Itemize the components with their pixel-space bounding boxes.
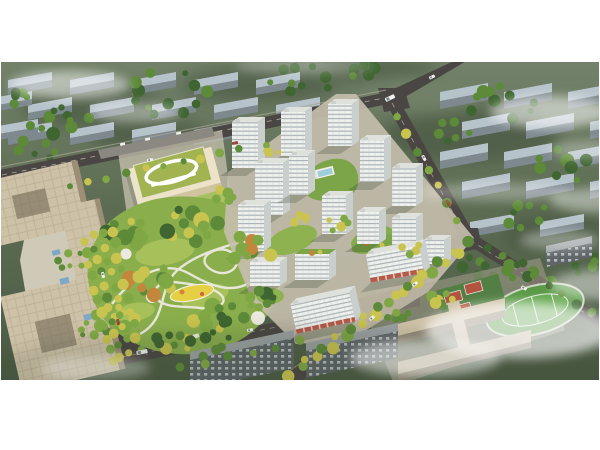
street-tree: [499, 252, 507, 260]
tree: [505, 91, 515, 101]
tree: [255, 303, 263, 311]
tree: [210, 216, 225, 231]
roof-equipment: [292, 152, 297, 155]
street-tree: [99, 229, 108, 238]
tree: [415, 242, 422, 249]
tower-side: [264, 200, 271, 251]
street-tree: [103, 258, 111, 266]
tree: [517, 224, 525, 232]
roof-equipment: [241, 202, 246, 205]
street-tree: [84, 261, 92, 269]
street-tree: [401, 129, 411, 139]
tree: [51, 108, 58, 115]
aerial-render: [0, 0, 600, 450]
tree: [496, 82, 504, 90]
tree: [78, 326, 85, 333]
cloud: [10, 71, 130, 99]
tree: [565, 161, 578, 174]
tree: [574, 177, 580, 183]
tree: [466, 105, 477, 116]
tree: [263, 148, 269, 154]
street-tree: [403, 282, 412, 291]
tree: [58, 104, 64, 110]
tree: [263, 142, 270, 149]
tree: [485, 87, 495, 97]
street-tree: [84, 178, 91, 185]
cloud: [91, 102, 179, 122]
tree: [303, 219, 308, 224]
roof-equipment: [427, 237, 432, 240]
tree: [444, 137, 451, 144]
street-tree: [116, 311, 124, 319]
roof-equipment: [235, 119, 240, 122]
tree: [11, 91, 20, 100]
street-tree: [87, 271, 97, 281]
street-tree: [130, 319, 139, 328]
tree: [457, 261, 469, 273]
tree: [84, 320, 90, 326]
street-tree: [111, 253, 122, 264]
street-tree: [100, 281, 109, 290]
tree: [10, 99, 19, 108]
tree: [450, 117, 459, 126]
tree: [212, 195, 221, 204]
street-tree: [80, 237, 88, 245]
street-tree: [426, 267, 438, 279]
tower-side: [346, 191, 353, 234]
tree: [238, 312, 250, 324]
tree: [326, 217, 332, 223]
tree: [215, 304, 224, 313]
tree: [184, 227, 195, 238]
tree: [147, 288, 161, 302]
street-tree: [101, 323, 108, 330]
street-tree: [373, 302, 383, 312]
tree: [473, 93, 481, 101]
tree: [235, 249, 242, 256]
tree: [535, 216, 544, 225]
tree: [253, 235, 264, 246]
street-tree: [484, 244, 492, 252]
tree: [59, 264, 66, 271]
tree: [345, 219, 352, 226]
tree: [534, 162, 546, 174]
tree: [481, 261, 490, 270]
street-tree: [89, 286, 99, 296]
street-tree: [143, 164, 150, 171]
tree: [67, 117, 74, 124]
roof-equipment: [325, 193, 330, 196]
tree: [175, 206, 183, 214]
tree: [79, 263, 85, 269]
street-tree: [122, 169, 130, 177]
tree: [26, 121, 35, 130]
tree: [535, 155, 543, 163]
tower-side: [379, 207, 386, 244]
street-tree: [441, 258, 450, 267]
roof-equipment: [363, 137, 368, 140]
tree: [179, 218, 189, 228]
tree: [430, 297, 442, 309]
tower-side: [352, 99, 359, 146]
street-tree: [108, 268, 115, 275]
tree: [406, 250, 414, 258]
tree: [466, 130, 472, 136]
tree: [160, 264, 168, 272]
tree: [243, 252, 251, 260]
tower-side: [283, 158, 290, 215]
tree: [510, 209, 517, 216]
street-tree: [425, 166, 433, 174]
tree: [591, 257, 599, 265]
tree: [449, 296, 456, 303]
cloud: [350, 340, 500, 376]
street-tree: [181, 158, 187, 164]
street-tree: [102, 176, 110, 184]
street-tree: [117, 265, 124, 272]
tree: [349, 72, 357, 80]
top-margin: [0, 0, 600, 62]
street-tree: [160, 163, 166, 169]
cloud: [40, 356, 150, 380]
street-tree: [235, 145, 243, 153]
street-tree: [90, 231, 98, 239]
rendering-page: [0, 0, 600, 450]
tree: [201, 85, 213, 97]
tree: [295, 211, 304, 220]
tree: [228, 302, 236, 310]
street-tree: [413, 148, 422, 157]
street-tree: [432, 256, 443, 267]
tree: [276, 150, 281, 155]
street-tree: [101, 244, 110, 253]
park-plaza-2: [121, 249, 132, 260]
roof-equipment: [253, 259, 258, 262]
street-tree: [417, 269, 428, 280]
tree: [571, 262, 579, 270]
roof-equipment: [395, 165, 400, 168]
tree: [115, 304, 122, 311]
street-tree: [93, 255, 102, 264]
tree: [330, 227, 336, 233]
tree: [285, 86, 295, 96]
tree: [38, 125, 45, 132]
tree: [178, 107, 189, 118]
street-tree: [453, 217, 460, 224]
tree: [18, 136, 29, 147]
street-tree: [67, 183, 73, 189]
tree: [503, 218, 514, 229]
tree: [182, 70, 188, 76]
tree: [541, 204, 547, 210]
bottom-margin: [0, 380, 600, 450]
street-tree: [462, 236, 474, 248]
roof-equipment: [360, 209, 365, 212]
roof-equipment: [395, 215, 400, 218]
tree: [80, 332, 85, 337]
tree: [51, 148, 58, 155]
street-tree: [391, 290, 401, 300]
tree: [216, 312, 226, 322]
tree: [443, 290, 450, 297]
street-tree: [358, 320, 367, 329]
street-tree: [123, 293, 133, 303]
tree: [134, 230, 148, 244]
street-tree: [126, 308, 134, 316]
tree: [501, 265, 513, 277]
playground-equipment-2: [200, 292, 204, 296]
tree: [136, 219, 145, 228]
tree: [434, 129, 444, 139]
tree: [158, 273, 174, 289]
cloud: [420, 183, 570, 201]
tree: [245, 292, 256, 303]
street-tree: [102, 293, 112, 303]
roof-equipment: [258, 160, 263, 163]
tree: [298, 82, 306, 90]
street-tree: [384, 298, 394, 308]
tree: [224, 196, 233, 205]
street-tree: [90, 246, 97, 253]
street-tree: [118, 279, 129, 290]
tree: [54, 257, 62, 265]
tree: [398, 243, 406, 251]
tree: [46, 127, 60, 141]
tree: [552, 171, 561, 180]
tree: [399, 314, 408, 323]
tree: [452, 134, 459, 141]
street-tree: [196, 155, 205, 164]
tree: [67, 263, 72, 268]
street-tree: [451, 249, 459, 257]
tree: [264, 249, 277, 262]
cloud: [520, 230, 600, 250]
tree: [392, 309, 400, 317]
tree: [324, 84, 332, 92]
tree: [42, 139, 51, 148]
tree: [526, 202, 534, 210]
tree: [78, 251, 83, 256]
street-tree: [514, 261, 521, 268]
tree: [192, 100, 201, 109]
tree: [189, 80, 200, 91]
tree: [129, 76, 141, 88]
street-tree: [109, 318, 116, 325]
tree: [198, 311, 210, 323]
park-plaza-3: [251, 311, 265, 325]
tower-side: [329, 249, 336, 280]
street-tree: [530, 271, 538, 279]
tower-side: [305, 107, 312, 156]
tree: [234, 231, 246, 243]
tree: [247, 302, 253, 308]
tree: [203, 231, 211, 239]
street-tree: [215, 148, 224, 157]
tower-side: [280, 257, 287, 286]
tree: [137, 283, 146, 292]
street-tree: [104, 303, 113, 312]
tree: [466, 254, 473, 261]
tree: [438, 119, 446, 127]
tree: [14, 145, 24, 155]
tower-side: [416, 163, 423, 206]
street-tree: [108, 227, 119, 238]
street-tree: [93, 295, 103, 305]
tree: [267, 79, 273, 85]
tree: [133, 271, 146, 284]
roof-equipment: [331, 101, 336, 104]
tower-side: [308, 150, 315, 195]
tree: [254, 286, 265, 297]
tree: [160, 224, 175, 239]
tree: [288, 79, 296, 87]
tree: [31, 151, 37, 157]
tower-side: [384, 135, 391, 182]
playground-equipment-1: [180, 290, 185, 295]
tree: [263, 299, 272, 308]
tree: [290, 218, 299, 227]
roof-equipment: [284, 109, 289, 112]
tree: [270, 294, 277, 301]
street-tree: [110, 237, 121, 248]
tree: [384, 314, 391, 321]
street-tree: [360, 312, 367, 319]
street-tree: [114, 295, 122, 303]
tree: [64, 249, 72, 257]
tree: [128, 218, 135, 225]
tree: [198, 221, 209, 232]
street-tree: [393, 113, 400, 120]
tree: [145, 68, 155, 78]
